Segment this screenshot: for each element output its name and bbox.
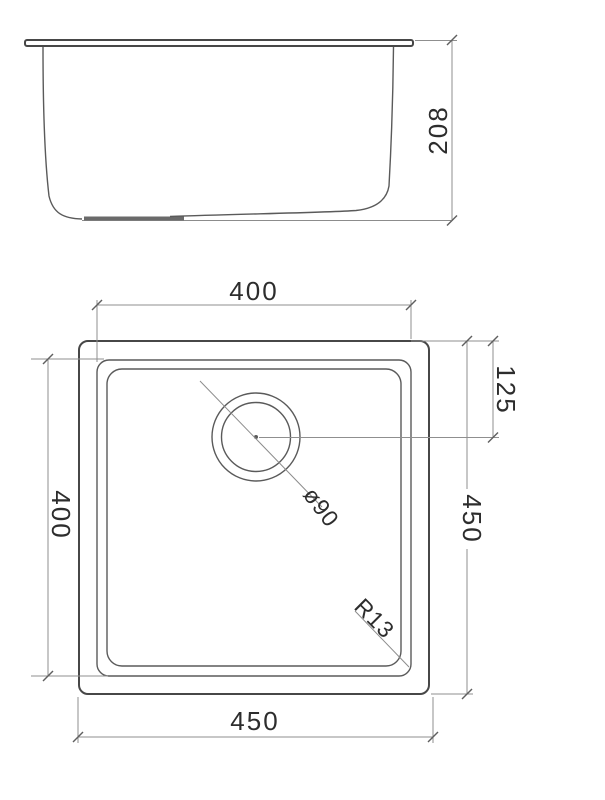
rim-bar-outline	[25, 40, 413, 46]
drain-diameter-leader	[200, 381, 322, 507]
drain-offset-label: 125	[491, 365, 521, 414]
side-elevation-view: 208	[25, 35, 457, 226]
corner-radius-label: R13	[349, 593, 399, 643]
dimension-depth-208: 208	[415, 35, 457, 226]
drawing-canvas: 208 ø90 R13 400	[0, 0, 605, 800]
depth-dimension-label: 208	[423, 105, 453, 154]
dimension-top-width-400: 400	[92, 276, 416, 362]
bowl-rim-outline	[97, 360, 411, 676]
bottom-width-label: 450	[230, 706, 279, 736]
dimension-right-height-450: 450	[431, 336, 487, 699]
right-wall-and-slope-outline	[170, 47, 394, 217]
drain: ø90	[200, 381, 345, 532]
dimension-bottom-width-450: 450	[73, 697, 438, 743]
left-height-label: 400	[46, 490, 76, 539]
sink-technical-drawing: 208 ø90 R13 400	[0, 0, 605, 800]
plan-view: ø90 R13 400 400	[31, 276, 521, 743]
right-height-label: 450	[457, 494, 487, 543]
bowl-inner-outline	[107, 369, 401, 666]
outer-edge-outline	[79, 341, 429, 694]
top-width-label: 400	[229, 276, 278, 306]
left-wall-outline	[43, 47, 82, 219]
